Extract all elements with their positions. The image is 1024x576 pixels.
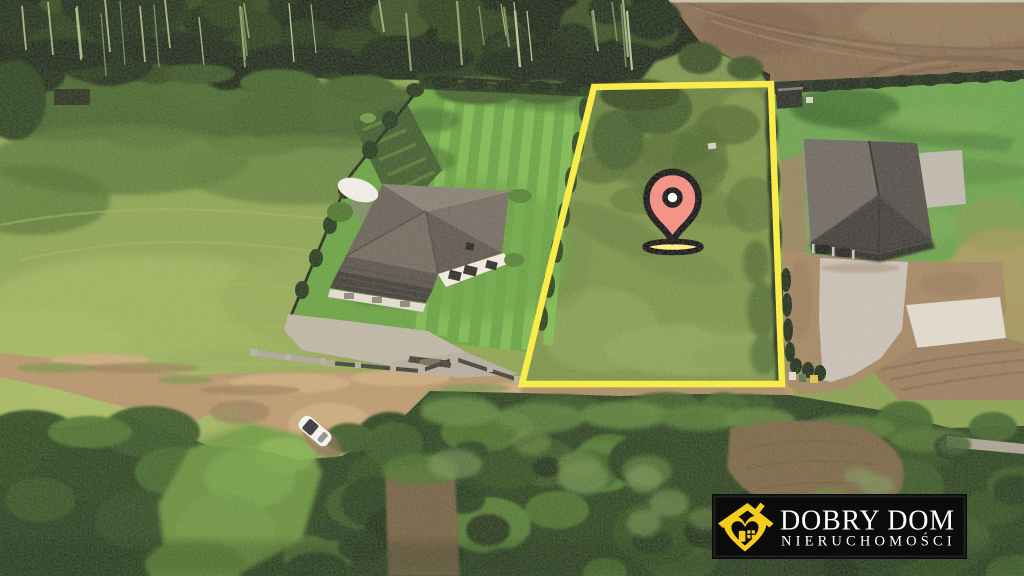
svg-text:DOBRY DOM: DOBRY DOM (780, 506, 955, 537)
svg-text:NIERUCHOMOŚCI: NIERUCHOMOŚCI (781, 533, 956, 550)
